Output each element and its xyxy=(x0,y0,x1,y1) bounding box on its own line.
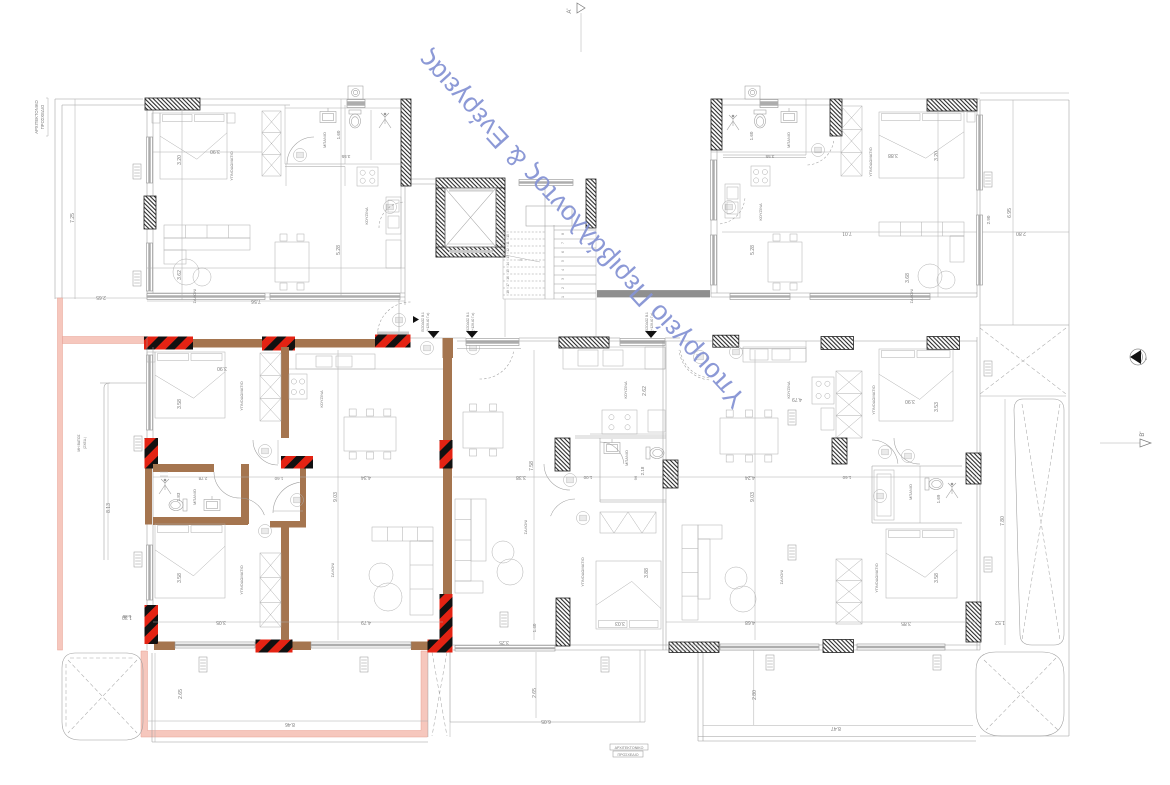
svg-text:7.01: 7.01 xyxy=(842,230,852,236)
svg-text:ΕΙΣΟΔΟΣ Β.1: ΕΙΣΟΔΟΣ Β.1 xyxy=(466,312,470,332)
svg-text:1.00: 1.00 xyxy=(583,475,592,480)
svg-text:5: 5 xyxy=(561,260,565,262)
svg-text:1.60: 1.60 xyxy=(336,130,341,139)
svg-text:16: 16 xyxy=(506,276,510,280)
svg-text:4.24: 4.24 xyxy=(745,474,755,480)
svg-text:ΑΡΧΙΤΕΚΤΟΝΙΚΟ: ΑΡΧΙΤΕΚΤΟΝΙΚΟ xyxy=(34,99,39,133)
svg-text:4: 4 xyxy=(561,269,565,271)
svg-text:Α': Α' xyxy=(567,8,573,13)
svg-text:8.47: 8.47 xyxy=(831,725,841,731)
svg-text:1.40: 1.40 xyxy=(532,623,537,632)
svg-text:6.95: 6.95 xyxy=(1007,208,1013,218)
svg-text:7.25: 7.25 xyxy=(70,213,76,223)
svg-text:12: 12 xyxy=(506,248,510,252)
svg-text:ΥΠΝΟΔΩΜΑΤΙΟ: ΥΠΝΟΔΩΜΑΤΙΟ xyxy=(868,147,873,177)
svg-text:ΚΟΥΖΙΝΑ: ΚΟΥΖΙΝΑ xyxy=(364,207,369,225)
svg-text:3.03: 3.03 xyxy=(615,620,625,626)
svg-text:1.69: 1.69 xyxy=(936,494,941,503)
svg-text:ΥΠΝΟΔΩΜΑΤΙΟ: ΥΠΝΟΔΩΜΑΤΙΟ xyxy=(874,563,879,593)
svg-text:Β': Β' xyxy=(1140,431,1146,436)
svg-text:3.55: 3.55 xyxy=(341,154,350,159)
svg-text:1: 1 xyxy=(561,296,565,298)
svg-text:11: 11 xyxy=(506,241,510,245)
svg-text:7.58: 7.58 xyxy=(529,461,535,471)
svg-text:4.68: 4.68 xyxy=(745,619,755,625)
svg-text:ΜΠΑΝΙΟ: ΜΠΑΝΙΟ xyxy=(908,484,913,500)
svg-text:15: 15 xyxy=(506,269,510,273)
svg-text:2.80: 2.80 xyxy=(1016,230,1026,236)
svg-text:1.52: 1.52 xyxy=(995,619,1005,625)
svg-text:6: 6 xyxy=(561,251,565,253)
svg-text:8.46: 8.46 xyxy=(285,721,295,727)
svg-text:3.38: 3.38 xyxy=(516,474,526,480)
svg-text:ΜΗ ΒΑΤΟΣ: ΜΗ ΒΑΤΟΣ xyxy=(77,434,81,451)
svg-text:ΚΟΥΖΙΝΑ: ΚΟΥΖΙΝΑ xyxy=(623,381,628,399)
svg-text:ΥΠΝΟΔΩΜΑΤΙΟ: ΥΠΝΟΔΩΜΑΤΙΟ xyxy=(239,565,244,595)
svg-text:3: 3 xyxy=(561,278,565,280)
svg-text:ΣΑΛΟΝΙ: ΣΑΛΟΝΙ xyxy=(523,520,528,535)
svg-text:3.20: 3.20 xyxy=(934,151,940,161)
svg-text:3.58: 3.58 xyxy=(177,573,183,583)
svg-text:7.80: 7.80 xyxy=(1000,516,1006,526)
svg-text:9.03: 9.03 xyxy=(750,492,756,502)
svg-text:96: 96 xyxy=(633,475,638,480)
svg-text:2.90: 2.90 xyxy=(986,215,991,224)
svg-text:7: 7 xyxy=(561,242,565,244)
svg-text:4.79: 4.79 xyxy=(361,619,371,625)
svg-text:3.90: 3.90 xyxy=(217,365,227,371)
svg-text:4.34: 4.34 xyxy=(361,474,371,480)
svg-text:ΚΟΥΖΙΝΑ: ΚΟΥΖΙΝΑ xyxy=(319,390,324,408)
svg-text:ΥΠΝΟΔΩΜΑΤΙΟ: ΥΠΝΟΔΩΜΑΤΙΟ xyxy=(239,381,244,411)
svg-text:3.85: 3.85 xyxy=(901,620,911,626)
svg-text:5.28: 5.28 xyxy=(336,245,342,255)
svg-text:3.68: 3.68 xyxy=(905,273,911,283)
svg-text:2.65: 2.65 xyxy=(532,688,538,698)
svg-text:ΣΑΛΟΝΙ: ΣΑΛΟΝΙ xyxy=(779,570,784,585)
svg-text:(+128.40 Γ.α): (+128.40 Γ.α) xyxy=(471,313,475,332)
svg-text:ΥΠΝΟΔΩΜΑΤΙΟ: ΥΠΝΟΔΩΜΑΤΙΟ xyxy=(229,151,234,181)
svg-text:3.58: 3.58 xyxy=(177,399,183,409)
svg-text:(ΣΧΕΔ.): (ΣΧΕΔ.) xyxy=(83,437,87,449)
svg-text:2.65: 2.65 xyxy=(96,294,106,300)
svg-text:2: 2 xyxy=(561,287,565,289)
svg-text:2.80: 2.80 xyxy=(752,690,758,700)
svg-text:ΠΡΟΣΧΕΔΙΟ: ΠΡΟΣΧΕΔΙΟ xyxy=(40,104,45,129)
svg-text:2.65: 2.65 xyxy=(178,689,184,699)
svg-text:3.05: 3.05 xyxy=(216,619,226,625)
svg-text:8.13: 8.13 xyxy=(106,503,112,513)
svg-text:1.60: 1.60 xyxy=(749,131,754,140)
svg-text:ΚΟΥΖΙΝΑ: ΚΟΥΖΙΝΑ xyxy=(786,381,791,399)
svg-text:14: 14 xyxy=(506,262,510,266)
svg-text:ΜΠΑΝΙΟ: ΜΠΑΝΙΟ xyxy=(322,132,327,148)
svg-text:ΥΠΝΟΔΩΜΑΤΙΟ: ΥΠΝΟΔΩΜΑΤΙΟ xyxy=(580,557,585,587)
svg-text:ΜΠΑΝΙΟ: ΜΠΑΝΙΟ xyxy=(786,132,791,148)
svg-text:4.79: 4.79 xyxy=(792,396,802,402)
svg-text:ΚΟΥΖΙΝΑ: ΚΟΥΖΙΝΑ xyxy=(758,203,763,221)
svg-text:7.56: 7.56 xyxy=(251,298,261,304)
svg-text:5.28: 5.28 xyxy=(750,245,756,255)
svg-text:2.62: 2.62 xyxy=(642,386,648,396)
svg-text:13: 13 xyxy=(506,255,510,259)
svg-text:ΜΠΑΝΙΟ: ΜΠΑΝΙΟ xyxy=(192,489,197,505)
svg-text:9.03: 9.03 xyxy=(333,492,339,502)
svg-text:3.58: 3.58 xyxy=(934,573,940,583)
svg-text:ΥΠΝΟΔΩΜΑΤΙΟ: ΥΠΝΟΔΩΜΑΤΙΟ xyxy=(871,385,876,415)
svg-text:ΜΠΑΝΙΟ: ΜΠΑΝΙΟ xyxy=(624,450,629,466)
svg-text:(+128.40 Γ.α): (+128.40 Γ.α) xyxy=(426,313,430,332)
svg-text:3.88: 3.88 xyxy=(888,152,898,158)
svg-text:ΕΙΣΟΔΟΣ Β.1: ΕΙΣΟΔΟΣ Β.1 xyxy=(421,312,425,332)
svg-text:ΣΑΛΟΝΙ: ΣΑΛΟΝΙ xyxy=(909,289,914,304)
svg-text:3.53: 3.53 xyxy=(934,402,940,412)
svg-text:2.18: 2.18 xyxy=(640,466,645,475)
svg-text:1.30: 1.30 xyxy=(122,614,131,619)
svg-text:1.60: 1.60 xyxy=(842,475,851,480)
svg-text:10: 10 xyxy=(506,234,510,238)
svg-text:17: 17 xyxy=(506,283,510,287)
svg-text:ΑΡΧΙΤΕΚΤΟΝΙΚΟ: ΑΡΧΙΤΕΚΤΟΝΙΚΟ xyxy=(615,746,644,750)
svg-text:3.62: 3.62 xyxy=(177,270,183,280)
svg-text:ΣΑΛΟΝΙ: ΣΑΛΟΝΙ xyxy=(330,563,335,578)
svg-text:3.25: 3.25 xyxy=(499,639,509,645)
svg-text:18: 18 xyxy=(506,290,510,294)
svg-text:3.90: 3.90 xyxy=(210,148,220,154)
svg-text:6.05: 6.05 xyxy=(541,718,551,724)
svg-text:3.90: 3.90 xyxy=(905,398,915,404)
svg-text:1.83: 1.83 xyxy=(176,492,181,501)
svg-text:ΠΡΟΣΧΕΔΙΟ: ΠΡΟΣΧΕΔΙΟ xyxy=(618,753,639,757)
svg-text:9: 9 xyxy=(519,259,523,261)
svg-text:3.88: 3.88 xyxy=(644,568,650,578)
svg-text:3.55: 3.55 xyxy=(765,154,774,159)
svg-text:3.20: 3.20 xyxy=(177,155,183,165)
